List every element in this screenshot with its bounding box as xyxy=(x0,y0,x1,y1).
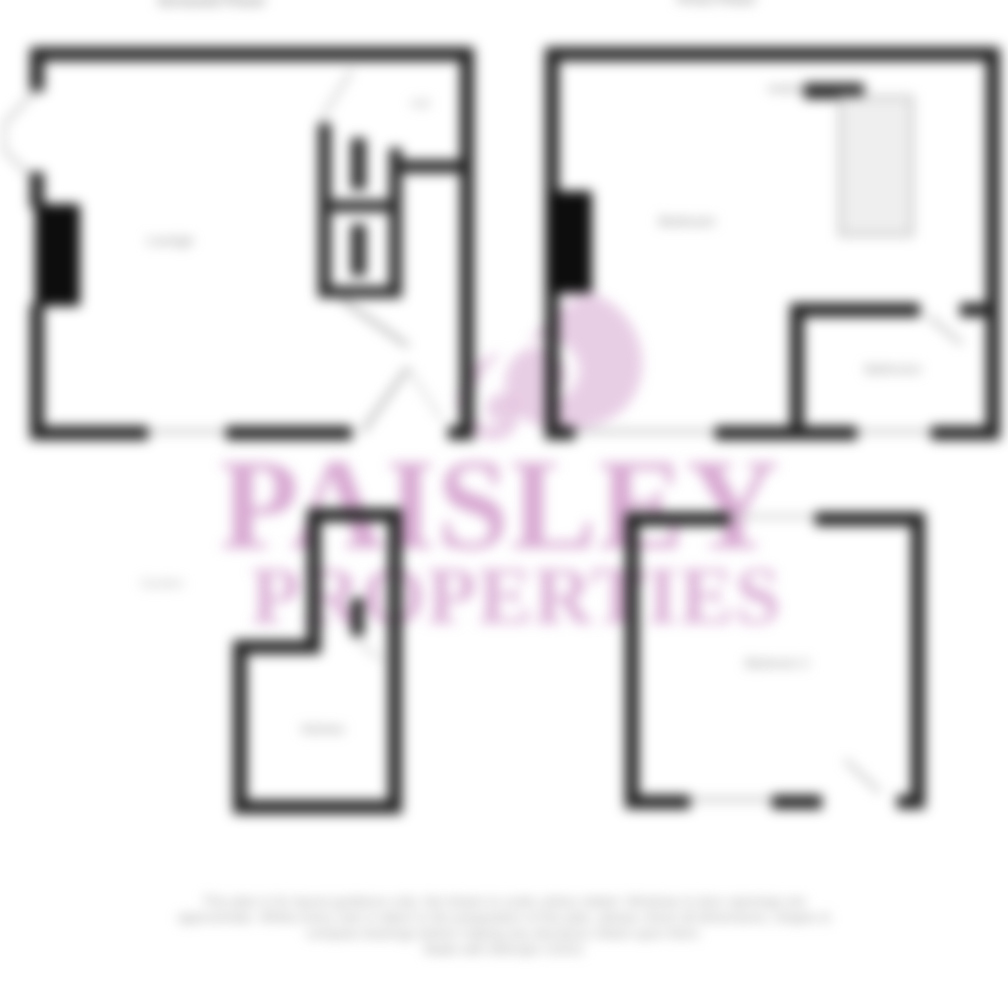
disclaimer-line: This plan is for layout guidance only. N… xyxy=(154,894,854,910)
blurred-drawing: PAISLEY PROPERTIES xyxy=(0,0,1008,1008)
disclaimer-line: compass bearings before making any decis… xyxy=(154,926,854,942)
ground-floor-title: Ground Floor xyxy=(158,0,267,11)
disclaimer-text: This plan is for layout guidance only. N… xyxy=(154,894,854,958)
room-label-lounge: Lounge xyxy=(147,232,194,248)
room-label-hall: Hall xyxy=(411,98,430,110)
first-floor-title: First Floor xyxy=(677,0,756,9)
disclaimer-line: approximate. Whilst every care is taken … xyxy=(154,910,854,926)
disclaimer-line: Made with Metropix ©2021 xyxy=(154,942,854,958)
room-label-kitchen: Kitchen xyxy=(301,722,344,737)
room-label-bedroom2: Bedroom 2 xyxy=(745,656,809,671)
floorplan-image: PAISLEY PROPERTIES xyxy=(0,0,1008,1008)
outside-label-garden: Garden xyxy=(140,576,183,591)
room-label-bathroom: Bathroom xyxy=(865,362,921,377)
room-label-bedroom: Bedroom xyxy=(659,213,716,229)
labels: Ground Floor First Floor Lounge Hall Bed… xyxy=(0,0,1008,1008)
